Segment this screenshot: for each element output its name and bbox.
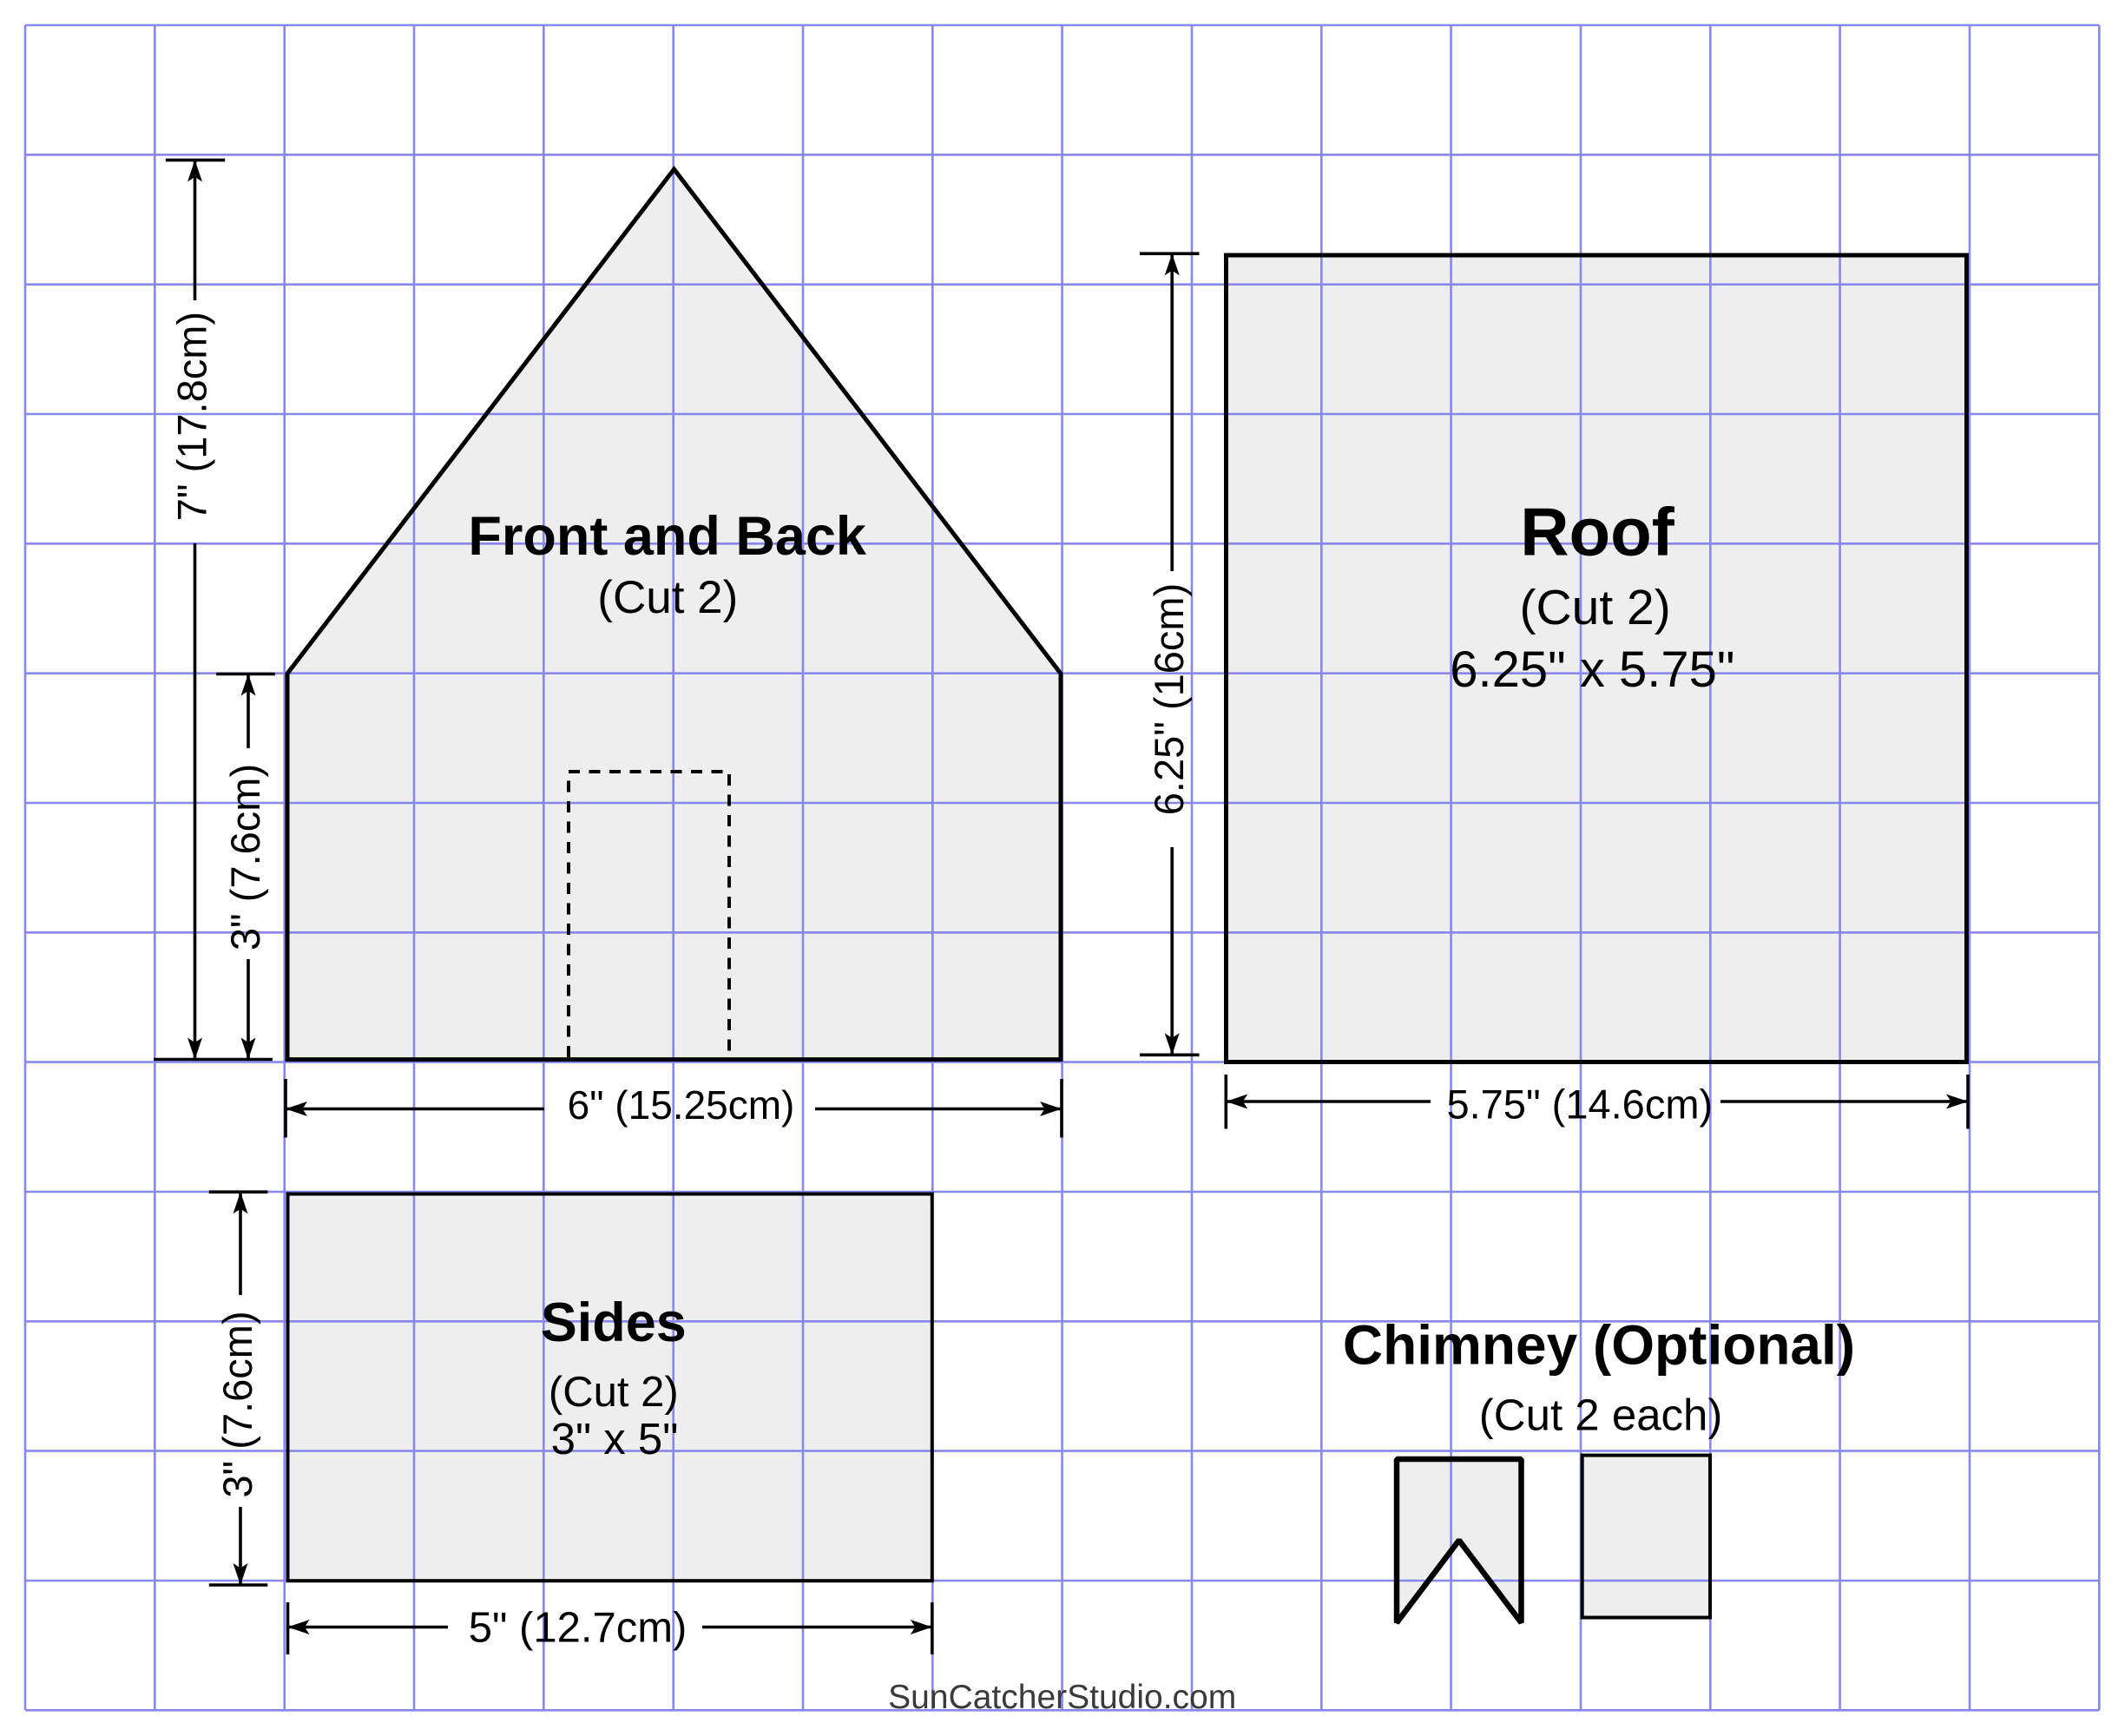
svg-text:6" (15.25cm): 6" (15.25cm)	[568, 1082, 795, 1128]
svg-text:3" (7.6cm): 3" (7.6cm)	[214, 1311, 260, 1497]
svg-text:7" (17.8cm): 7" (17.8cm)	[169, 312, 215, 521]
svg-text:(Cut 2 each): (Cut 2 each)	[1479, 1390, 1723, 1439]
svg-text:3" x 5": 3" x 5"	[551, 1414, 679, 1463]
svg-text:5" (12.7cm): 5" (12.7cm)	[469, 1604, 687, 1651]
svg-text:(Cut 2): (Cut 2)	[549, 1369, 679, 1416]
svg-text:(Cut 2): (Cut 2)	[1519, 580, 1670, 635]
svg-text:6.25" x 5.75": 6.25" x 5.75"	[1450, 641, 1734, 698]
svg-text:Sides: Sides	[541, 1292, 687, 1353]
svg-text:Chimney (Optional): Chimney (Optional)	[1343, 1314, 1855, 1377]
svg-text:Front and Back: Front and Back	[468, 506, 867, 567]
svg-text:3" (7.6cm): 3" (7.6cm)	[222, 764, 268, 950]
svg-text:Roof: Roof	[1520, 493, 1675, 569]
svg-text:6.25" (16cm): 6.25" (16cm)	[1146, 583, 1192, 815]
svg-text:(Cut 2): (Cut 2)	[597, 572, 738, 623]
svg-text:SunCatcherStudio.com: SunCatcherStudio.com	[888, 1679, 1236, 1716]
svg-text:5.75" (14.6cm): 5.75" (14.6cm)	[1446, 1082, 1713, 1128]
